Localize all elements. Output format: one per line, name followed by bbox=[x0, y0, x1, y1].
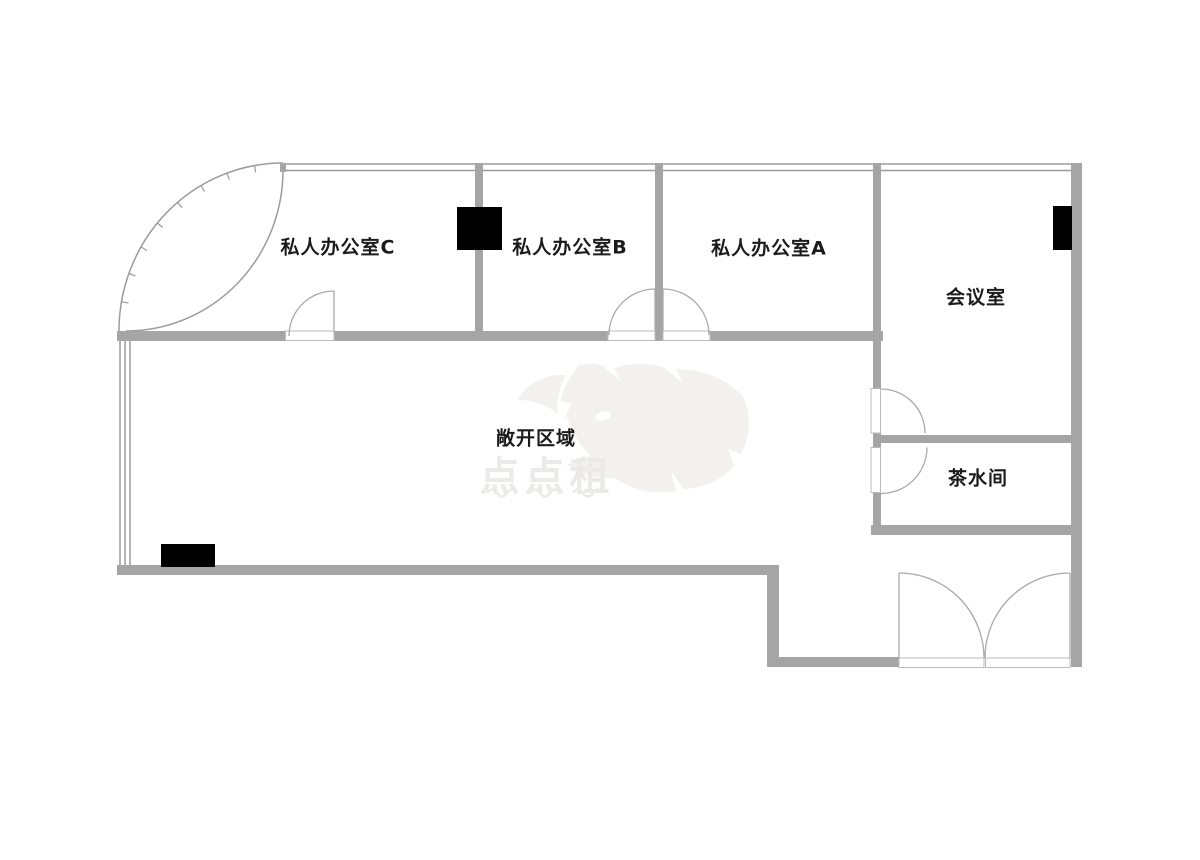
door-office-a bbox=[663, 289, 710, 341]
window-mullion-ticks bbox=[122, 166, 256, 304]
room-label-private-office-a: 私人办公室A bbox=[711, 234, 827, 261]
entrance-bottom-wall bbox=[767, 657, 899, 667]
corridor-wall-segment bbox=[117, 331, 285, 341]
open-area-bottom-wall bbox=[117, 565, 779, 575]
column-office-b bbox=[457, 207, 502, 250]
bottom-jog-wall bbox=[767, 575, 779, 657]
room-label-meeting-room: 会议室 bbox=[946, 283, 1006, 310]
meeting-pantry-divider-wall bbox=[881, 435, 1071, 443]
meeting-room-left-wall bbox=[873, 433, 881, 447]
right-exterior-wall bbox=[1071, 163, 1082, 667]
door-office-c bbox=[286, 291, 335, 341]
room-label-open-area: 敞开区域 bbox=[496, 424, 576, 451]
wall-office-a-meeting bbox=[873, 163, 881, 341]
entrance-double-door bbox=[899, 573, 1070, 668]
pantry-left-wall bbox=[873, 493, 881, 525]
pantry-bottom-wall bbox=[871, 525, 1082, 535]
room-label-private-office-c: 私人办公室C bbox=[281, 233, 396, 260]
floor-plan: 点点租 私人办公室C 私人办公室B 私人办公室A 会议室 敞开区域 茶水间 bbox=[0, 0, 1200, 860]
corridor-wall-segment bbox=[334, 331, 608, 341]
corridor-wall-segment bbox=[710, 331, 883, 341]
room-label-pantry: 茶水间 bbox=[948, 464, 1008, 491]
door-pantry bbox=[871, 448, 927, 494]
watermark-brand-text: 点点租 bbox=[480, 444, 615, 502]
curved-curtain-wall-window bbox=[119, 163, 283, 331]
wall-office-b-a bbox=[655, 163, 663, 341]
column-open-area bbox=[161, 544, 215, 567]
column-meeting-room bbox=[1053, 206, 1072, 250]
window-joint bbox=[280, 163, 286, 172]
room-label-private-office-b: 私人办公室B bbox=[512, 233, 627, 260]
top-window-wall bbox=[283, 163, 1071, 172]
door-office-b bbox=[608, 289, 655, 341]
left-window-wall bbox=[119, 331, 131, 566]
floor-plan-drawing bbox=[0, 0, 1200, 860]
meeting-room-left-wall bbox=[873, 341, 881, 388]
door-meeting-room bbox=[871, 389, 925, 434]
